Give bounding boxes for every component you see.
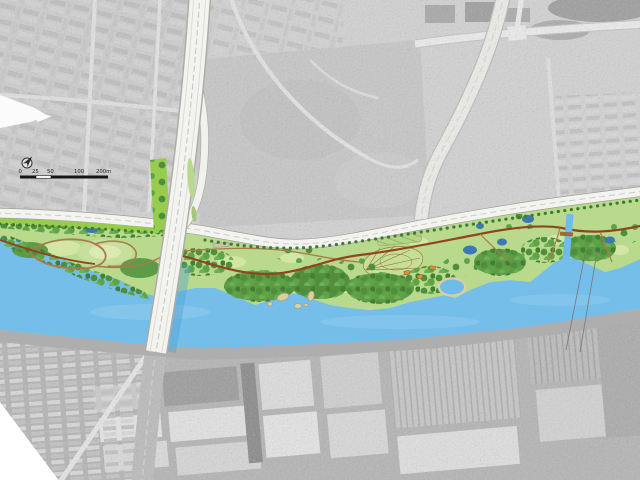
river-island bbox=[268, 302, 273, 306]
tree-cluster bbox=[474, 248, 526, 276]
lagoon bbox=[440, 280, 464, 295]
scale-segment bbox=[20, 176, 36, 179]
masterplan-map: 0 25 50 100 200m bbox=[0, 0, 640, 480]
park-building bbox=[430, 266, 436, 270]
scale-segment bbox=[36, 176, 51, 179]
river-island bbox=[304, 304, 308, 307]
tree-cluster bbox=[336, 258, 376, 278]
river-island bbox=[295, 304, 302, 309]
river-highlight bbox=[510, 294, 610, 306]
scale-label-25: 25 bbox=[32, 169, 39, 175]
scale-segment bbox=[80, 176, 108, 179]
park-pond bbox=[497, 239, 507, 246]
scale-label-100: 100 bbox=[74, 169, 85, 175]
tree-cluster bbox=[521, 237, 569, 263]
map-canvas: 0 25 50 100 200m bbox=[0, 0, 640, 480]
scale-label-200: 200m bbox=[96, 169, 111, 175]
park-pond bbox=[463, 246, 477, 255]
park-building bbox=[417, 274, 423, 278]
park-channel bbox=[566, 214, 570, 260]
park-building bbox=[213, 243, 229, 248]
river-highlight bbox=[320, 315, 480, 329]
scale-label-50: 50 bbox=[47, 169, 54, 175]
tree-cluster bbox=[442, 256, 478, 276]
park-pond bbox=[605, 237, 615, 244]
park-building bbox=[404, 270, 410, 274]
scale-segment bbox=[51, 176, 80, 179]
river-highlight bbox=[90, 304, 210, 320]
